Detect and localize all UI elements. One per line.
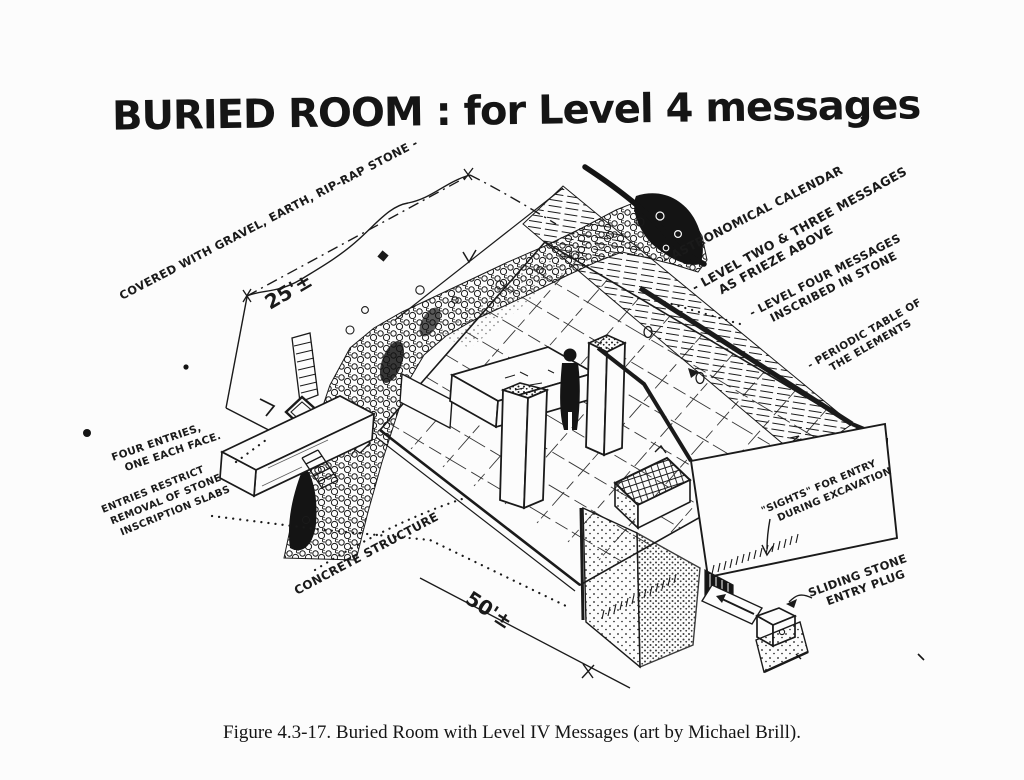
dimension-50-label: 50'± — [461, 586, 517, 634]
dimension-25-label: 25'± — [261, 268, 317, 314]
buried-room-diagram: COVERED WITH GRAVEL, EARTH, RIP-RAP STON… — [0, 0, 1024, 780]
annotation-covered-text: COVERED WITH GRAVEL, EARTH, RIP-RAP STON… — [117, 136, 420, 303]
pillar-left — [500, 383, 547, 508]
annotation-dim-50: 50'± — [461, 586, 517, 634]
annotation-dim-25: 25'± — [261, 268, 317, 314]
figure-caption: Figure 4.3-17. Buried Room with Level IV… — [0, 722, 1024, 744]
annotation-periodic-line1: - PERIODIC TABLE OF — [806, 296, 924, 371]
annotation-entries-restrict: ENTRIES RESTRICT REMOVAL OF STONE INSCRI… — [100, 458, 232, 542]
annotation-sliding-stone: SLIDING STONE ENTRY PLUG — [806, 551, 913, 613]
annotation-periodic-table: - PERIODIC TABLE OF THE ELEMENTS — [806, 296, 931, 382]
annotation-four-entries: FOUR ENTRIES, ONE EACH FACE. — [110, 417, 223, 477]
sliding-stone-entry-plug — [702, 570, 812, 672]
scanned-figure-page: BURIED ROOM : for Level 4 messages — [0, 0, 1024, 780]
annotation-covered: COVERED WITH GRAVEL, EARTH, RIP-RAP STON… — [117, 136, 420, 303]
